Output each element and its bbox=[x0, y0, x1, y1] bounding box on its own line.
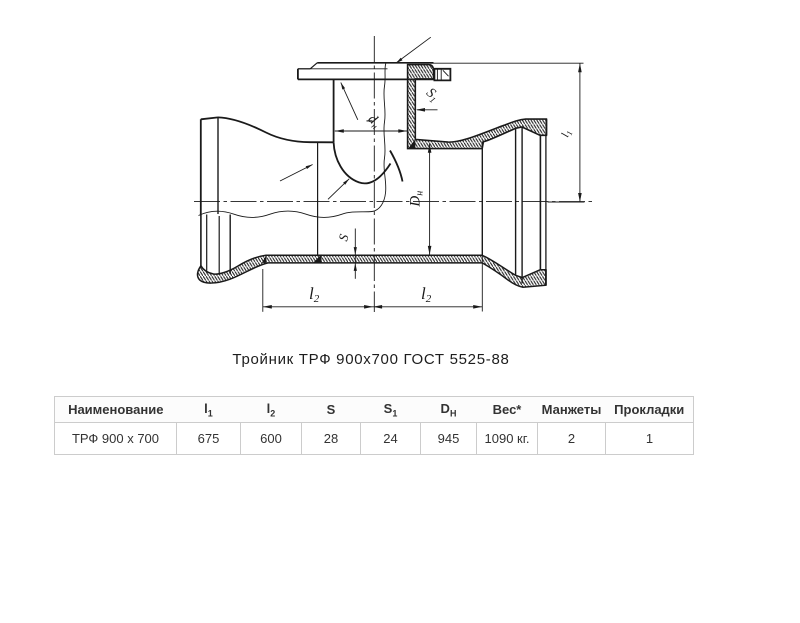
svg-text:l1: l1 bbox=[559, 128, 574, 139]
svg-text:S: S bbox=[335, 232, 351, 243]
svg-text:dн: dн bbox=[364, 112, 383, 132]
svg-text:Dн: Dн bbox=[408, 191, 426, 208]
svg-text:l2: l2 bbox=[421, 284, 432, 305]
svg-text:l2: l2 bbox=[309, 284, 320, 305]
svg-text:S1: S1 bbox=[422, 85, 441, 105]
